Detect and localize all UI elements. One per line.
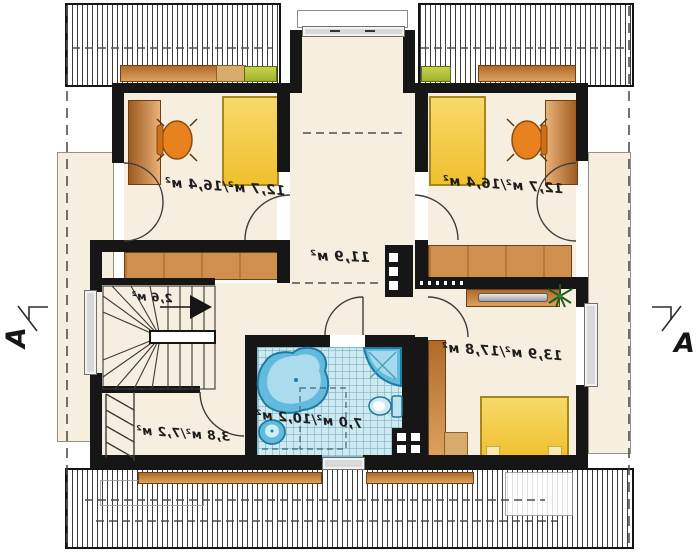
room-area-label: 2,6 м² — [131, 289, 173, 306]
toilet — [369, 396, 402, 417]
attic-floor-plan: 12,7 м²/16,4 м² 12,7 м²/16,4 м² 11,9 м² … — [0, 0, 700, 557]
potted-plant — [548, 284, 572, 307]
ceiling-height-dashed-lines — [72, 48, 625, 521]
stair-direction-arrow — [190, 295, 212, 319]
plan-linework — [0, 0, 700, 557]
office-chair — [157, 119, 197, 161]
room-area-label: 11,9 м² — [310, 248, 370, 266]
section-marker-a-right: A — [674, 328, 695, 359]
section-marker-a-left: A — [1, 327, 32, 348]
shower — [364, 348, 401, 386]
eaves-dashed-line — [67, 6, 629, 545]
office-chair — [507, 119, 547, 161]
bathtub — [258, 348, 328, 413]
wardrobe-hanging-rail — [106, 392, 134, 461]
